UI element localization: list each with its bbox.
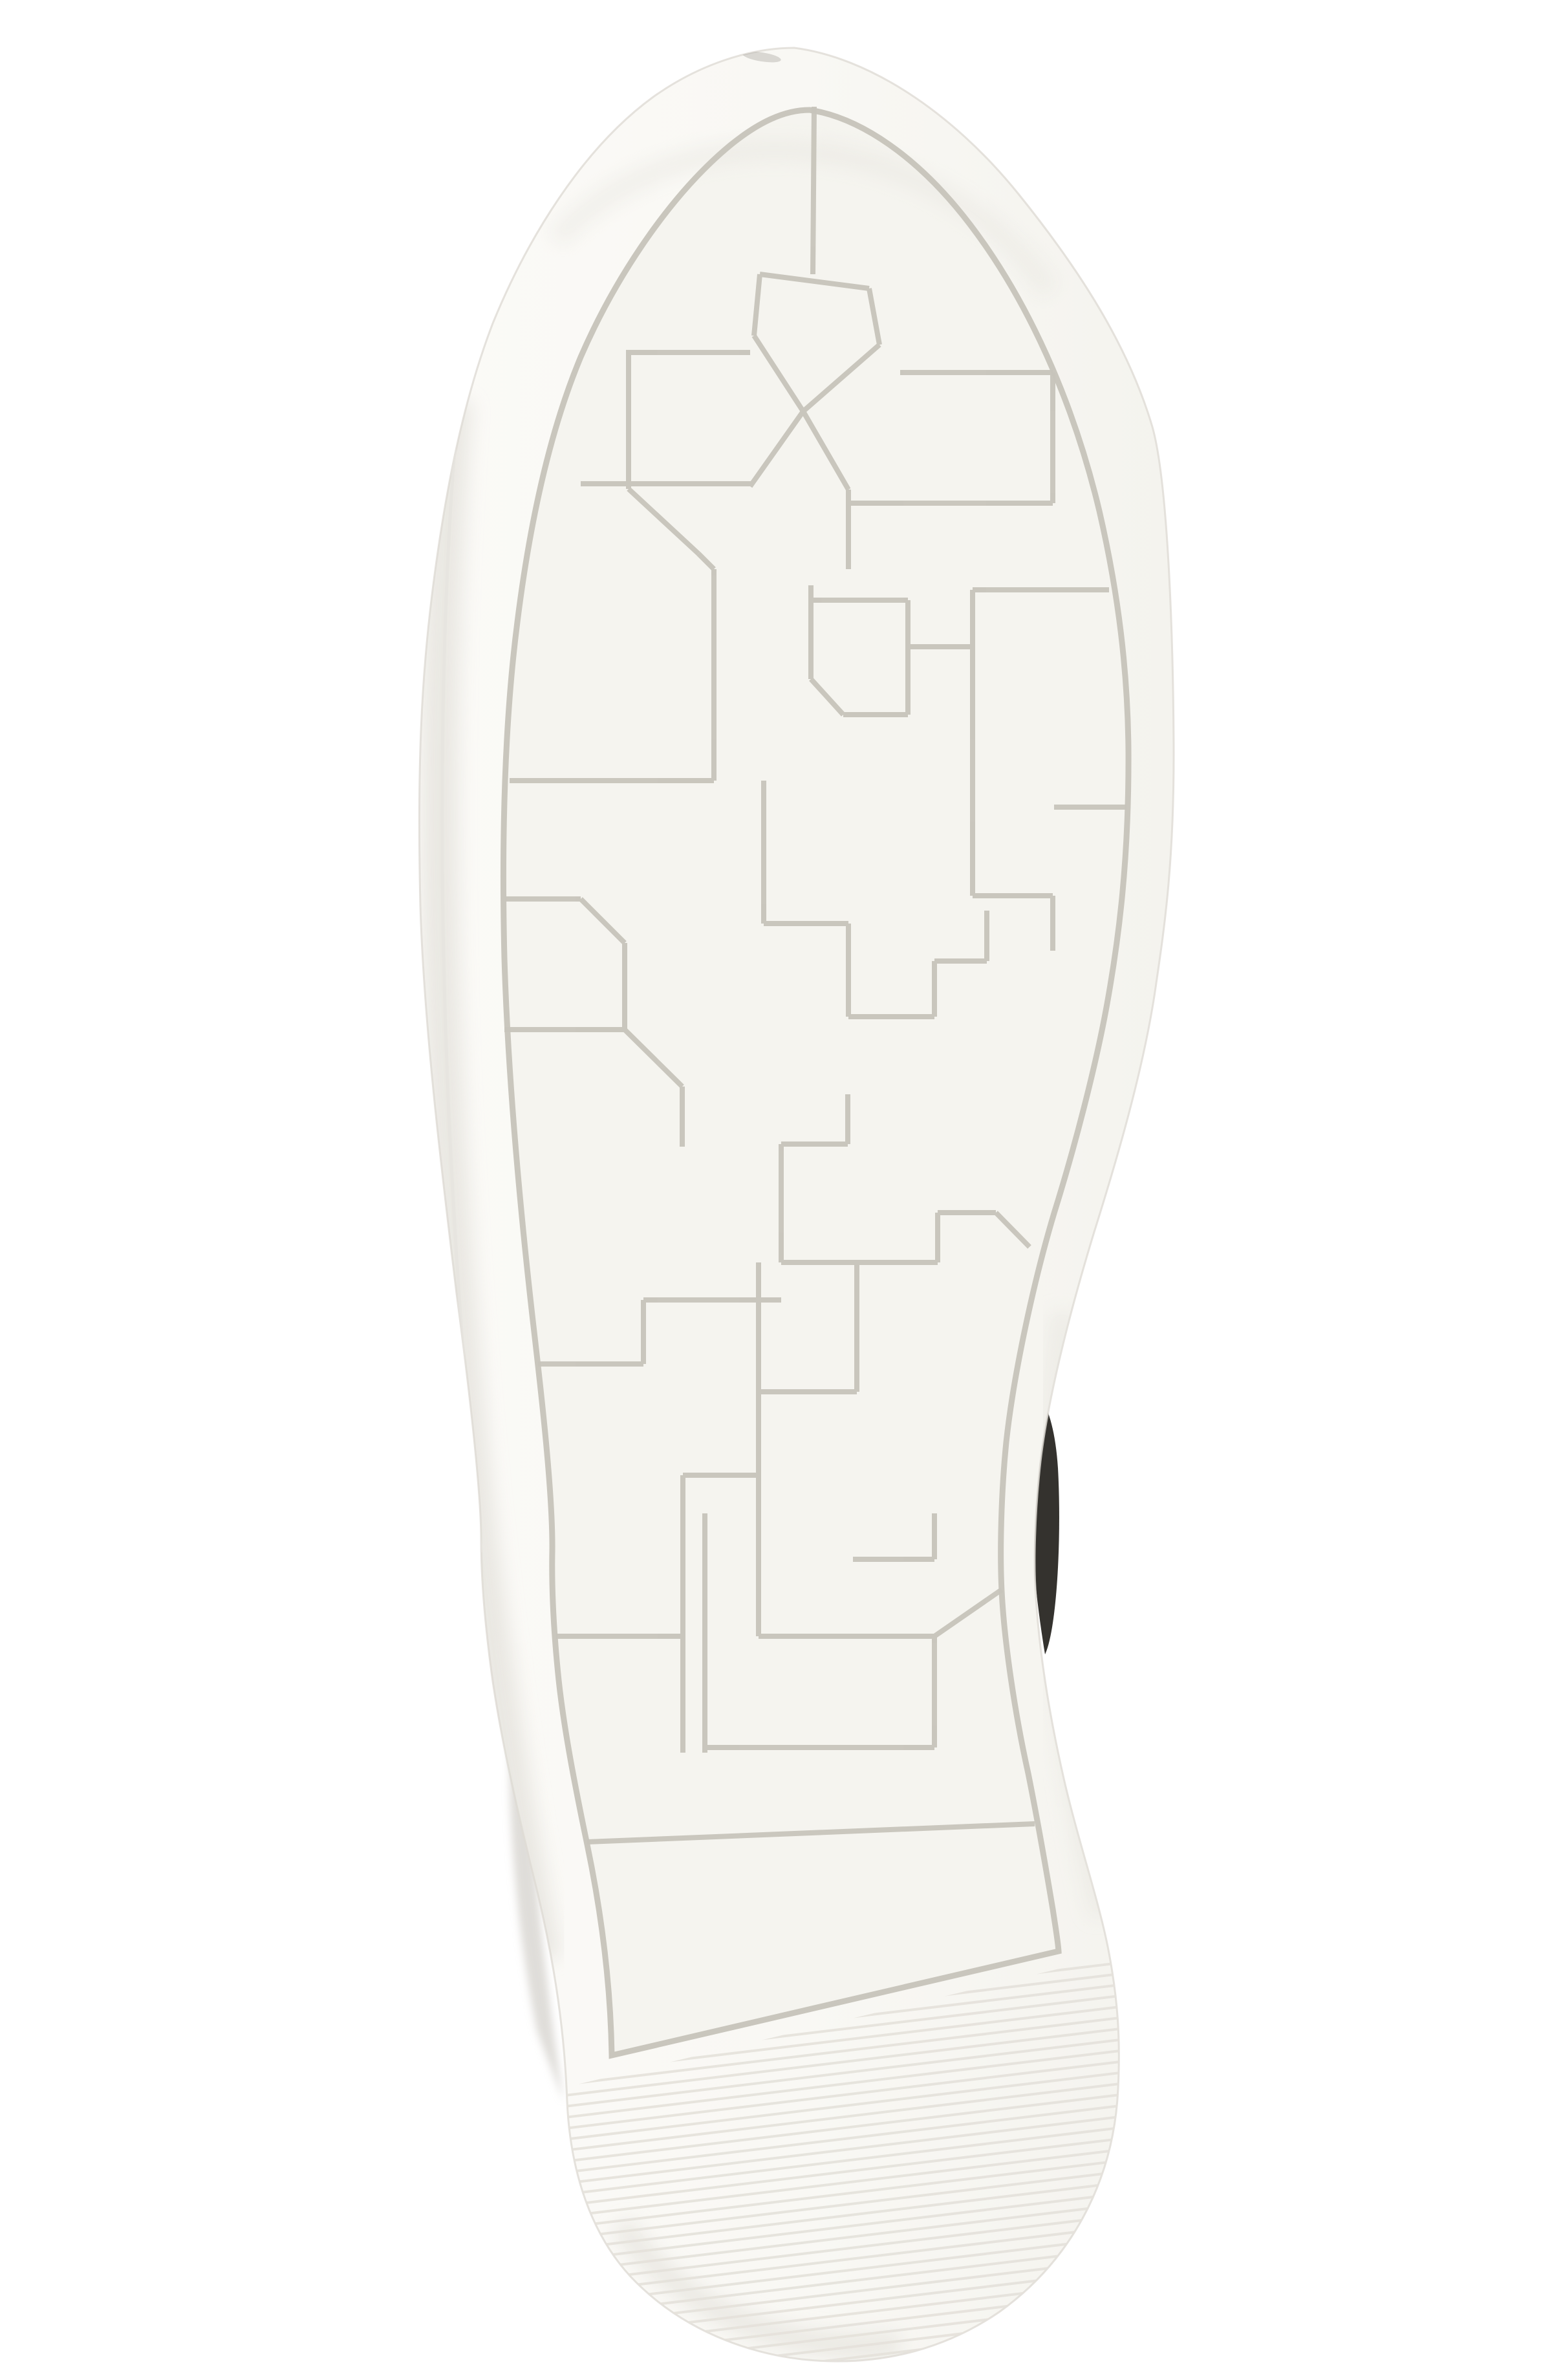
product-photo — [0, 0, 1552, 2380]
shoe-sole-image — [0, 0, 1552, 2380]
tread-groove — [813, 107, 814, 274]
